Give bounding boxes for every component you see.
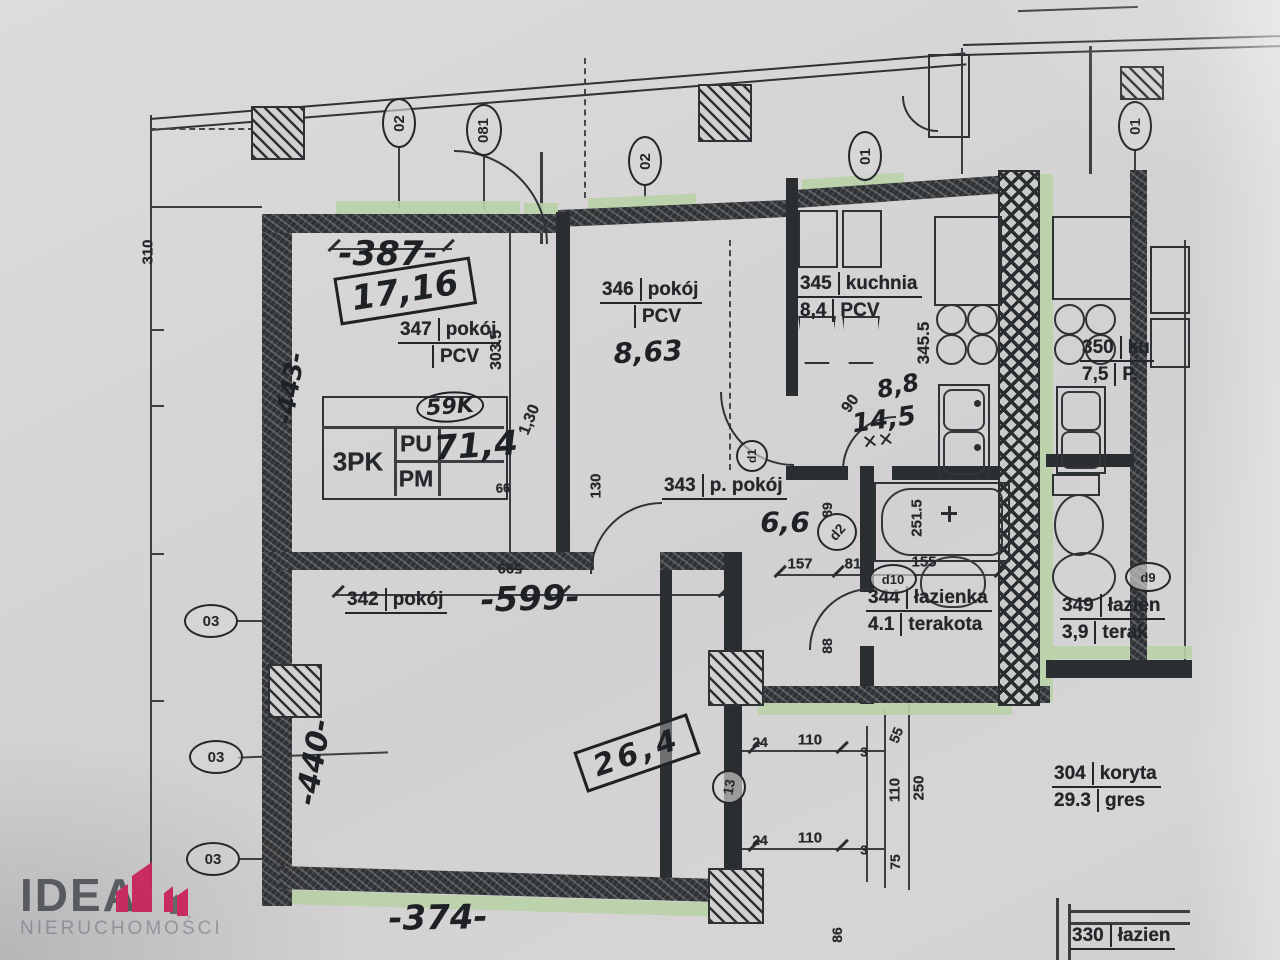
neighbor-cabinet — [1052, 216, 1132, 300]
axis-dash-vertical-2 — [729, 240, 731, 470]
axis-marker-02-b: 02 — [628, 136, 662, 186]
dim-599-printed: 599 — [497, 560, 522, 577]
bathtub-inner — [881, 488, 1003, 556]
logo-subtitle-text: NIERUCHOMOŚCI — [20, 918, 223, 940]
handwritten-area-8-8: 8,8 — [874, 368, 921, 404]
dim-stub-1 — [152, 206, 262, 208]
dim-310: 310 — [140, 239, 157, 264]
toilet-bowl-349 — [1054, 494, 1104, 556]
neighbor-sink-bowl-2 — [1061, 431, 1101, 469]
axis-marker-02-a: 02 — [382, 98, 416, 148]
dim-stub-5 — [150, 700, 164, 702]
wall-neighbor-bottom — [1046, 660, 1192, 678]
dim-24a: 24 — [752, 734, 768, 750]
neighbor-sink-bowl-1 — [1061, 391, 1101, 431]
dim-3b: 3 — [860, 843, 867, 858]
neighbor-burner-2 — [1085, 304, 1116, 335]
shaft-crosshatch — [998, 170, 1040, 706]
axis-marker-01-a: 01 — [848, 131, 882, 181]
dim-86: 86 — [829, 927, 845, 943]
dim-extension-303 — [509, 218, 511, 556]
neighbor-fixture-1 — [1150, 246, 1190, 314]
room-label-330: 330łazien — [1070, 924, 1175, 950]
legend-pu: PU — [400, 431, 432, 458]
cooktop-burner-4 — [967, 334, 998, 365]
room-label-350: 350ku 7,5P. — [1080, 336, 1154, 386]
handwritten-area-8-63: 8,63 — [613, 334, 684, 371]
wall-347-346 — [556, 212, 570, 560]
dim-250: 250 — [911, 775, 928, 800]
room-label-304: 304koryta 29.3gres — [1052, 762, 1161, 812]
handwritten-dim-599: -599- — [480, 577, 581, 620]
hatch-block-3 — [1120, 66, 1164, 100]
kitchen-cabinet-1 — [798, 210, 838, 268]
kitchen-cabinet-2 — [842, 210, 882, 268]
wall-346-345 — [786, 196, 798, 396]
handwritten-strike-marks: ✕✕ — [861, 428, 896, 454]
watermark-logo: IDEA NIERUCHOMOŚCI — [12, 854, 252, 958]
door-marker-d10: d10 — [869, 564, 917, 594]
neighbor-burner-1 — [1054, 304, 1085, 335]
door-marker-d1: d1 — [736, 440, 768, 472]
handwritten-dim-374: -374- — [388, 897, 488, 939]
handwritten-area-6-6: 6,6 — [760, 506, 810, 539]
axis-line-left — [150, 115, 152, 887]
neighbor-fixture-2 — [1150, 318, 1190, 368]
dim-81: 81 — [845, 556, 862, 573]
door-marker-d2: d2 — [817, 513, 857, 551]
logo-building-bar-icon — [177, 888, 188, 916]
kitchen-chair-1 — [798, 316, 836, 364]
dim-stub-3 — [150, 405, 164, 407]
dim-157: 157 — [787, 556, 812, 573]
cooktop-burner-1 — [936, 304, 967, 335]
cooktop-burner-3 — [936, 334, 967, 365]
room-label-346: 346pokój PCV — [600, 278, 702, 328]
logo-building-bar-icon — [164, 886, 173, 912]
room-label-344: 344łazienka 4.1terakota — [866, 586, 992, 636]
room-label-349: 349łazien 3,9terak — [1060, 594, 1165, 644]
door-marker-13: 13 — [712, 770, 746, 804]
kitchen-chair-2 — [842, 316, 880, 364]
dim-75: 75 — [887, 854, 903, 870]
wall-corridor — [724, 552, 742, 906]
dim-88: 88 — [819, 638, 835, 654]
hatch-block-2 — [698, 84, 752, 142]
door-marker-d9: d9 — [1125, 562, 1171, 592]
axis-marker-01-b: 01 — [1118, 101, 1152, 151]
dim-24b: 24 — [752, 832, 768, 848]
outline-thin-top — [1018, 6, 1138, 12]
wall-line-top-2 — [1089, 46, 1092, 174]
dim-stub-4 — [150, 553, 164, 555]
hatch-block-6 — [708, 868, 764, 924]
dim-1-30: 1,30 — [516, 402, 544, 438]
axis-marker-03-a: 03 — [184, 604, 238, 638]
axis-dash-vertical-1 — [584, 58, 586, 198]
axis-marker-081: 081 — [466, 104, 502, 156]
dim-stub-2 — [150, 329, 164, 331]
dim-345-5: 345.5 — [914, 322, 934, 365]
hatch-block-4 — [268, 664, 322, 718]
dim-251-5: 251.5 — [909, 499, 926, 537]
handwritten-dim-440: -440- — [289, 716, 339, 808]
kitchen-sink-bowl-1 — [943, 389, 985, 431]
room-label-347: 347pokój PCV — [398, 318, 500, 368]
hatch-block-1 — [251, 106, 305, 160]
kitchen-sink-bowl-2 — [943, 431, 985, 475]
dim-110v: 110 — [887, 778, 904, 802]
dim-3a: 3 — [860, 745, 867, 760]
wall-kitchen-bottom-a — [786, 466, 848, 480]
dim-130: 130 — [588, 473, 605, 498]
cooktop-burner-2 — [967, 304, 998, 335]
building-outline-top-right — [963, 35, 1280, 56]
room-label-345: 345kuchnia 8,4PCV — [798, 272, 922, 322]
hatch-block-5 — [708, 650, 764, 706]
dim-303-5: 303.5 — [488, 330, 506, 370]
dim-55: 55 — [886, 725, 907, 745]
room-label-342: 342pokój — [345, 588, 447, 614]
toilet-tank-349 — [1052, 474, 1100, 496]
room-label-343: 343p. pokój — [662, 474, 787, 500]
handwritten-area-71-4: 71,4 — [433, 423, 519, 469]
axis-marker-03-b: 03 — [189, 740, 243, 774]
dim-99: 99 — [495, 480, 510, 496]
floorplan-scan: 3PK PU PM 347pokój PCV 346pokój PCV 345k… — [0, 0, 1280, 960]
legend-pm: PM — [399, 466, 434, 493]
handwritten-area-26-4: 26,4 — [573, 713, 700, 793]
dim-155: 155 — [911, 554, 936, 571]
legend-type: 3PK — [333, 447, 384, 478]
wall-342-top-a — [262, 552, 594, 570]
dim-110a: 110 — [798, 732, 822, 749]
axis-dash-horizontal — [150, 128, 254, 130]
dim-110b: 110 — [798, 830, 822, 847]
fridge — [934, 216, 1002, 306]
